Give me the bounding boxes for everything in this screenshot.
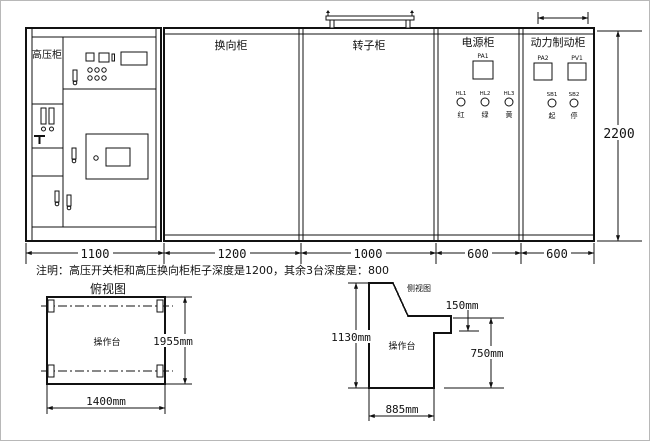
dim-1100: 1100 [81, 247, 110, 261]
power-cabinet-label: 电源柜 [462, 35, 495, 49]
side-step-text: 150mm [445, 299, 478, 312]
mount-pad-icon [48, 300, 54, 312]
console-profile [369, 283, 451, 388]
door-handle-icon [55, 191, 59, 206]
height-dim-text: 2200 [603, 127, 634, 142]
side-desk-height-dimension: 750mm [444, 318, 507, 388]
door-handle-icon [67, 195, 71, 210]
reversing-cabinet: 换向柜 [215, 38, 248, 52]
brake-cabinet-label: 动力制动柜 [531, 36, 586, 49]
window-inner [106, 148, 130, 166]
meter-tag: PA2 [537, 55, 548, 62]
plan-view-title: 俯视图 [90, 281, 126, 296]
lamp-tag: HL3 [504, 91, 515, 97]
lamp-color-char: 绿 [482, 110, 489, 119]
lamp-color-char: 黄 [506, 110, 513, 119]
reversing-cabinet-label: 换向柜 [215, 38, 248, 52]
mount-pad-icon [157, 365, 163, 377]
top-width-arrow [538, 12, 588, 24]
dim-600b: 600 [546, 247, 568, 261]
meter-rect-icon [121, 52, 147, 65]
power-cabinet: 电源柜 PA1 HL1 HL2 HL3 红 绿 黄 [456, 35, 515, 119]
engineering-drawing: 高压柜 [0, 0, 650, 441]
plan-width-text: 1400mm [86, 395, 126, 408]
earth-switch-icon [34, 136, 45, 144]
mount-pad-icon [157, 300, 163, 312]
width-dimensions: 1100 1200 1000 600 600 [26, 243, 594, 264]
indicator-lamp-icon [457, 98, 465, 106]
hv-inspection-window [86, 134, 148, 179]
button-tag: SB2 [569, 92, 580, 98]
side-total-height-text: 1130mm [331, 331, 371, 344]
fuse-bar-icon [49, 108, 54, 124]
side-depth-text: 885mm [385, 403, 418, 416]
side-console-label: 操作台 [388, 340, 415, 352]
plan-console-label: 操作台 [93, 336, 120, 348]
drawing-svg: 高压柜 [1, 1, 650, 441]
button-char: 起 [549, 112, 556, 120]
indicator-dot-icon [42, 127, 46, 131]
height-dimension-2200: 2200 [597, 31, 642, 241]
hv-instrument-panel [63, 52, 156, 89]
meter-tag: PV1 [571, 55, 583, 62]
side-view-title: 侧视图 [407, 283, 431, 293]
door-handle-icon [73, 70, 77, 85]
side-step-dimension: 150mm [445, 299, 504, 331]
lamp-dot-icon [95, 76, 99, 80]
rotor-cabinet: 转子柜 [353, 38, 386, 52]
hook-tip [326, 10, 330, 13]
plan-depth-text: 1955mm [153, 335, 193, 348]
lamp-dot-icon [88, 76, 92, 80]
meter-square-icon [86, 53, 94, 61]
lamp-tag: HL1 [456, 91, 467, 97]
door-handle-icon [72, 148, 76, 163]
cabinet-row: 换向柜 转子柜 电源柜 PA1 HL1 HL2 HL3 红 绿 黄 动力制动柜 [164, 28, 594, 241]
hv-cabinet-label: 高压柜 [32, 48, 62, 61]
switch-bar-icon [112, 54, 115, 61]
meter-square-icon [99, 53, 109, 62]
hv-cabinet: 高压柜 [26, 28, 161, 241]
lamp-dot-icon [102, 68, 106, 72]
lamp-dot-icon [95, 68, 99, 72]
fuse-icons [41, 108, 54, 131]
lamp-color-char: 红 [458, 110, 465, 119]
pushbutton-icon [548, 99, 556, 107]
side-desk-height-text: 750mm [470, 347, 503, 360]
button-char: 停 [571, 111, 578, 120]
lamp-dot-icon [102, 76, 106, 80]
button-tag: SB1 [547, 92, 558, 98]
pushbutton-icon [570, 99, 578, 107]
rotor-cabinet-label: 转子柜 [353, 38, 386, 52]
meter-icon [568, 63, 586, 80]
lifting-bar-icon [326, 10, 414, 28]
side-total-height-dimension: 1130mm [330, 283, 372, 388]
lamp-tag: HL2 [480, 91, 491, 97]
indicator-lamp-icon [505, 98, 513, 106]
indicator-lamp-icon [481, 98, 489, 106]
brake-cabinet: 动力制动柜 PA2 PV1 SB1 SB2 起 停 [531, 36, 587, 120]
note-text: 注明：高压开关柜和高压换向柜柜子深度是1200，其余3台深度是：800 [36, 263, 389, 277]
row-frame [164, 28, 594, 241]
mount-pad-icon [48, 365, 54, 377]
hook-tip [410, 10, 414, 13]
dim-1000: 1000 [354, 247, 383, 261]
fuse-bar-icon [41, 108, 46, 124]
plan-width-dimension: 1400mm [47, 384, 165, 414]
indicator-dot-icon [50, 127, 54, 131]
ammeter-icon [473, 61, 493, 79]
dim-600a: 600 [467, 247, 489, 261]
lamp-dot-icon [88, 68, 92, 72]
plan-view: 俯视图 操作台 1955mm 1400mm [41, 281, 195, 414]
side-view: 侧视图 操作台 1130mm 150mm 750mm 885mm [330, 283, 507, 421]
front-elevation: 高压柜 [26, 10, 642, 241]
meter-icon [534, 63, 552, 80]
dim-1200: 1200 [218, 247, 247, 261]
side-depth-dimension: 885mm [369, 388, 434, 421]
meter-tag: PA1 [477, 53, 488, 60]
